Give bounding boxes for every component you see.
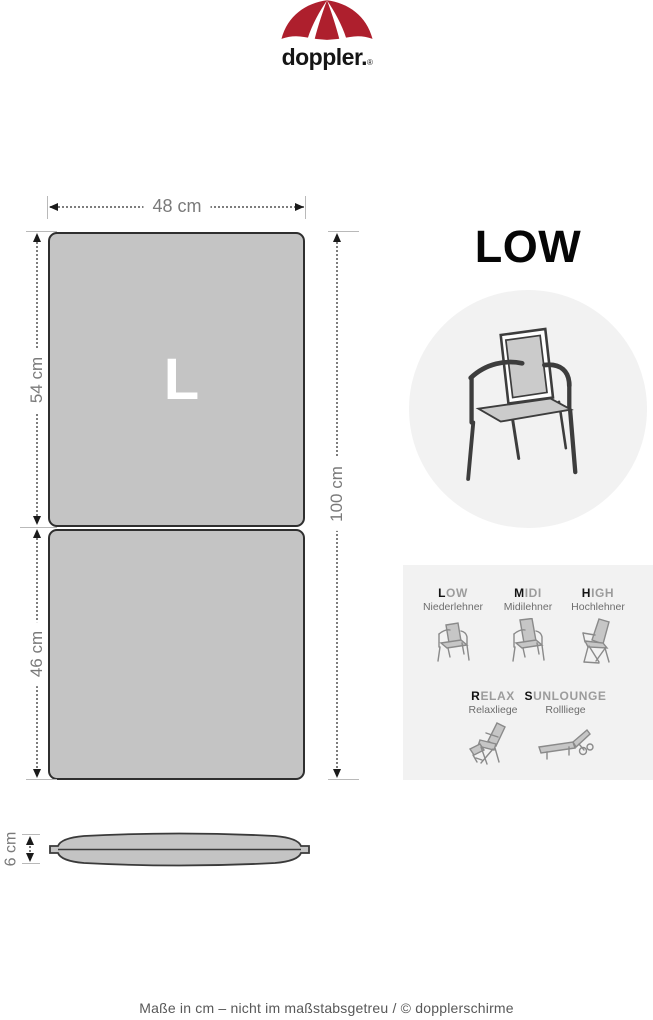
sunlounge-icon xyxy=(535,721,597,763)
umbrella-icon xyxy=(281,0,373,41)
legend-sublabel: Hochlehner xyxy=(558,602,638,613)
dim-label-total: 100 cm xyxy=(327,457,347,531)
dim-label-seat: 46 cm xyxy=(27,622,47,686)
cushion-side-view xyxy=(48,832,311,868)
arrow-up-icon xyxy=(33,529,41,538)
registered-mark: ® xyxy=(367,58,372,67)
dim-label-thickness: 6 cm xyxy=(1,826,20,873)
dim-label-width: 48 cm xyxy=(143,196,210,218)
dim-tick xyxy=(328,231,359,232)
arrow-up-icon xyxy=(26,836,34,845)
legend-sublabel: Niederlehner xyxy=(413,602,493,613)
dim-tick xyxy=(305,196,306,219)
chair-types-legend: LOW Niederlehner MIDI Midilehner xyxy=(403,565,653,780)
dim-tick xyxy=(47,196,48,219)
legend-code: MIDI xyxy=(488,587,568,599)
high-chair-icon xyxy=(575,618,621,664)
doppler-logo: doppler.® xyxy=(281,0,373,69)
dim-tick xyxy=(26,779,57,780)
legend-item-high: HIGH Hochlehner xyxy=(558,587,638,669)
legend-sublabel: Midilehner xyxy=(488,602,568,613)
cushion-seat-section xyxy=(48,529,305,780)
dim-tick xyxy=(20,527,57,528)
legend-item-low: LOW Niederlehner xyxy=(413,587,493,669)
arrow-right-icon xyxy=(295,203,304,211)
arrow-down-icon xyxy=(26,853,34,862)
dim-tick xyxy=(22,834,40,835)
chair-type-circle xyxy=(409,290,647,528)
arrow-left-icon xyxy=(49,203,58,211)
midi-chair-icon xyxy=(506,618,550,664)
low-armchair-icon xyxy=(439,312,619,508)
arrow-up-icon xyxy=(33,233,41,242)
dim-tick xyxy=(328,779,359,780)
brand-wordmark: doppler.® xyxy=(281,46,373,69)
relax-chair-icon xyxy=(468,721,518,767)
infographic-canvas: doppler.® 48 cm L 54 cm 46 cm 100 cm LOW xyxy=(0,0,653,1020)
size-letter: L xyxy=(48,232,305,527)
arrow-down-icon xyxy=(33,769,41,778)
dim-label-back: 54 cm xyxy=(27,348,47,412)
dim-tick xyxy=(26,231,57,232)
legend-item-midi: MIDI Midilehner xyxy=(488,587,568,669)
arrow-down-icon xyxy=(333,769,341,778)
arrow-down-icon xyxy=(33,516,41,525)
legend-code: SUNLOUNGE xyxy=(518,690,613,702)
legend-code: LOW xyxy=(413,587,493,599)
legend-sublabel: Rollliege xyxy=(518,705,613,716)
dim-tick xyxy=(22,863,40,864)
footer-note: Maße in cm – nicht im maßstabsgetreu / ©… xyxy=(0,1000,653,1016)
low-chair-icon xyxy=(431,618,475,664)
legend-item-sunlounge: SUNLOUNGE Rollliege xyxy=(518,690,613,768)
type-title: LOW xyxy=(403,224,653,269)
arrow-up-icon xyxy=(333,233,341,242)
legend-code: HIGH xyxy=(558,587,638,599)
